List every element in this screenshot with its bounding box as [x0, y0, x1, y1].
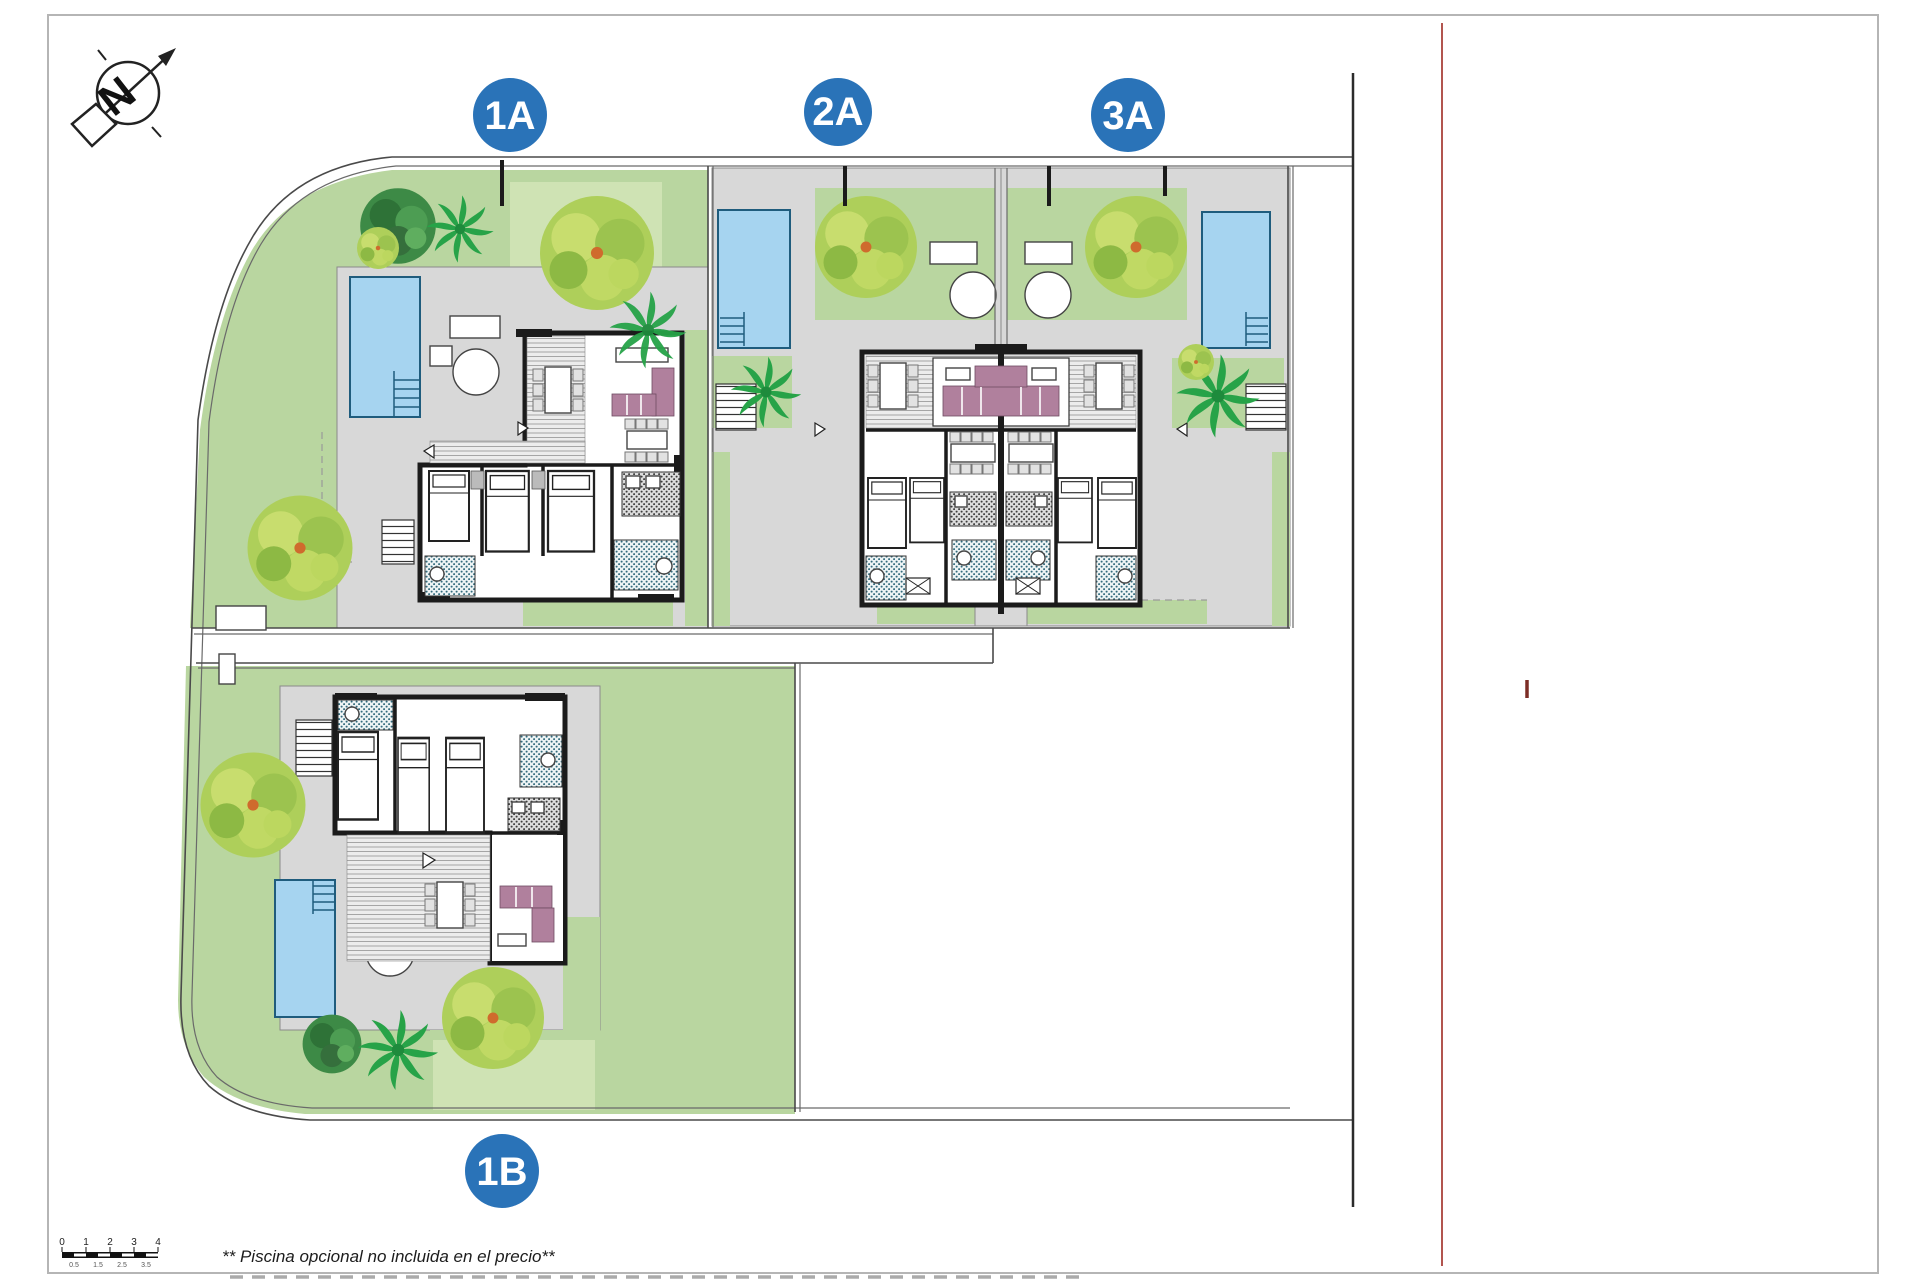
- exterior-stairs: [296, 720, 332, 776]
- dining-table: [425, 882, 475, 928]
- side-table: [430, 346, 452, 366]
- bed: [398, 738, 429, 833]
- bed: [446, 738, 484, 833]
- tree-icon: [1178, 344, 1214, 380]
- bed: [429, 471, 469, 541]
- pool-disclaimer-text: ** Piscina opcional no incluida en el pr…: [222, 1247, 556, 1266]
- coffee-table: [498, 934, 526, 946]
- villa-2a-3a-floorplan: [815, 344, 1187, 614]
- bed: [868, 478, 906, 548]
- villa-1b-floorplan: [335, 693, 565, 963]
- deck-terrace: [347, 835, 490, 961]
- tree-icon: [303, 1015, 362, 1074]
- villa-badge-1b[interactable]: 1B: [465, 1134, 539, 1208]
- entrance-gate: [216, 606, 266, 630]
- tree-icon: [357, 227, 399, 269]
- dining-table-2: [625, 419, 668, 462]
- tree-icon: [442, 967, 544, 1069]
- pool-3a: [1202, 212, 1270, 348]
- pool-2a: [718, 210, 790, 348]
- bed: [338, 732, 378, 820]
- round-patio-table: [950, 272, 996, 318]
- sun-lounger: [1025, 242, 1072, 264]
- villa-badge-3a[interactable]: 3A: [1091, 78, 1165, 152]
- bed: [910, 478, 944, 542]
- svg-text:4: 4: [155, 1237, 161, 1248]
- svg-text:2.5: 2.5: [117, 1262, 127, 1269]
- site-plan-page: N 1A 2A 3A 1B 0 1 2: [0, 0, 1920, 1280]
- svg-text:0.5: 0.5: [69, 1262, 79, 1269]
- pool-1a: [350, 277, 420, 417]
- exterior-stairs: [1246, 384, 1286, 430]
- svg-text:3.5: 3.5: [141, 1262, 151, 1269]
- svg-text:1: 1: [83, 1237, 89, 1248]
- villa-badge-label: 3A: [1102, 94, 1153, 138]
- round-patio-table: [1025, 272, 1071, 318]
- villa-badge-label: 2A: [812, 90, 863, 134]
- tree-icon: [815, 196, 917, 298]
- tree-icon: [248, 496, 353, 601]
- site-plan-drawing: N 1A 2A 3A 1B 0 1 2: [0, 0, 1920, 1280]
- villa-badge-label: 1A: [484, 94, 535, 138]
- villa-badge-1a[interactable]: 1A: [473, 78, 547, 152]
- svg-text:3: 3: [131, 1237, 137, 1248]
- exterior-stairs: [382, 520, 414, 564]
- tree-icon: [201, 753, 306, 858]
- villa-badge-2a[interactable]: 2A: [804, 78, 872, 146]
- svg-text:0: 0: [59, 1237, 65, 1248]
- bed: [1098, 478, 1136, 548]
- tree-icon: [1085, 196, 1187, 298]
- round-patio-table: [453, 349, 499, 395]
- sun-lounger: [450, 316, 500, 338]
- entrance-gate: [219, 654, 235, 684]
- dining-table: [868, 363, 918, 409]
- bed: [1058, 478, 1092, 542]
- bed: [548, 471, 594, 552]
- villa-badge-label: 1B: [476, 1150, 527, 1194]
- svg-text:2: 2: [107, 1237, 113, 1248]
- dining-table: [533, 367, 583, 413]
- svg-text:1.5: 1.5: [93, 1262, 103, 1269]
- tree-icon: [540, 196, 654, 310]
- pool-1b: [275, 880, 335, 1017]
- bed: [486, 471, 529, 552]
- dining-table: [1084, 363, 1134, 409]
- sun-lounger: [930, 242, 977, 264]
